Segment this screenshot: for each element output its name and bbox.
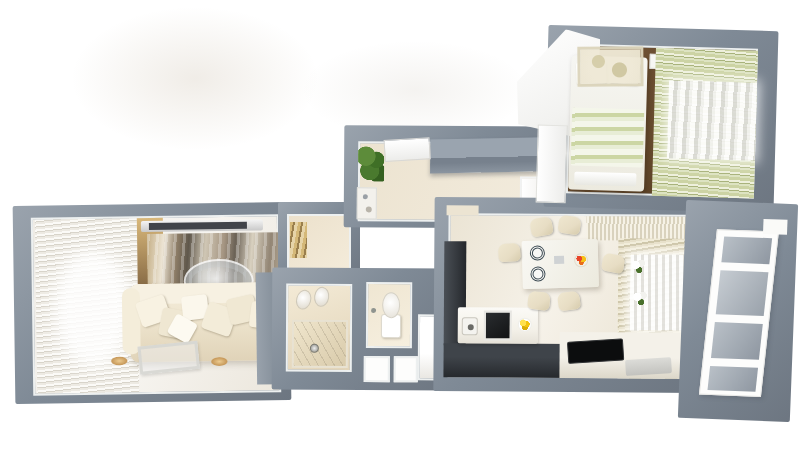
storage-closet xyxy=(394,356,418,382)
kitchen-curtain-top xyxy=(586,216,688,241)
flower-pot xyxy=(632,290,650,306)
kitchen-counter xyxy=(458,307,538,344)
kitchen-doorway xyxy=(447,205,479,215)
balcony-step xyxy=(763,219,788,235)
chair xyxy=(557,215,581,236)
hygiene-sprayer xyxy=(371,308,376,313)
gold-cabinet xyxy=(290,222,307,258)
potted-plant xyxy=(358,145,384,181)
wc-floor xyxy=(366,282,412,348)
room-bathroom-block xyxy=(272,268,451,391)
bathtub xyxy=(292,320,348,368)
room-bedroom xyxy=(544,25,779,213)
flower-pot xyxy=(630,258,648,274)
dining-table xyxy=(522,239,599,289)
kitchen-sink xyxy=(462,317,478,335)
chair xyxy=(557,291,581,312)
chair xyxy=(601,252,626,274)
floorplan-render xyxy=(0,0,800,450)
window-light xyxy=(53,248,133,369)
balcony-railing xyxy=(699,229,779,397)
sink xyxy=(294,288,314,311)
bathroom-floor xyxy=(286,284,352,372)
bedroom-window xyxy=(667,80,757,160)
console-table xyxy=(357,187,377,219)
room-living xyxy=(13,202,292,404)
ceiling-medallion xyxy=(577,46,643,86)
sofa-armrest xyxy=(122,288,141,354)
entry-door xyxy=(384,137,431,162)
fruit-bowl xyxy=(574,253,588,267)
sink xyxy=(313,286,331,308)
ambient-shadow xyxy=(70,6,320,151)
glass-pane xyxy=(707,366,758,392)
napkin xyxy=(554,256,564,264)
drain xyxy=(310,344,319,353)
plate xyxy=(530,245,545,260)
foot-bench xyxy=(574,172,636,187)
oven xyxy=(484,310,512,340)
bench xyxy=(625,357,672,376)
lemon-bowl xyxy=(518,318,532,332)
wardrobe-side xyxy=(536,125,568,204)
storage-closet xyxy=(364,356,390,382)
chair xyxy=(498,243,521,262)
tv xyxy=(141,219,263,232)
cooktop xyxy=(567,338,624,363)
glass-pane xyxy=(716,270,769,316)
glass-pane xyxy=(711,322,763,360)
room-kitchen-dining xyxy=(433,197,700,393)
striped-duvet xyxy=(571,108,645,168)
plate xyxy=(530,266,545,281)
chair xyxy=(529,216,554,237)
base-cabinets xyxy=(443,343,569,378)
chair xyxy=(527,291,551,311)
glass-pane xyxy=(721,236,772,264)
balcony xyxy=(678,200,798,422)
toilet-bowl xyxy=(382,292,400,318)
